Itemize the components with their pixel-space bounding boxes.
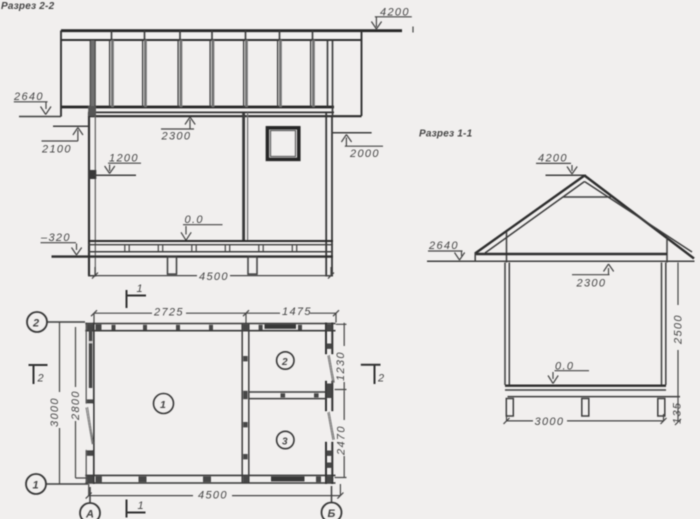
svg-text:4500: 4500 [199,271,229,283]
svg-text:135: 135 [672,402,684,424]
svg-text:3000: 3000 [49,397,61,427]
svg-text:2000: 2000 [349,148,380,160]
svg-text:2300: 2300 [161,131,192,143]
svg-text:2800: 2800 [70,390,82,421]
svg-text:4200: 4200 [538,153,568,165]
svg-text:2500: 2500 [673,314,685,345]
svg-text:3000: 3000 [535,416,565,428]
svg-text:1: 1 [33,480,39,492]
svg-text:2100: 2100 [41,144,72,156]
svg-text:1: 1 [137,283,144,295]
svg-text:1230: 1230 [335,351,347,381]
svg-text:1475: 1475 [282,306,312,318]
svg-text:2: 2 [32,318,39,330]
svg-text:4500: 4500 [198,490,228,502]
svg-text:1: 1 [138,500,145,512]
svg-text:Б: Б [328,508,336,519]
svg-text:2640: 2640 [428,240,459,252]
svg-text:1: 1 [160,399,166,411]
svg-text:Разрез 1-1: Разрез 1-1 [419,129,473,140]
svg-text:Разрез 2-2: Разрез 2-2 [1,1,55,12]
svg-text:2300: 2300 [576,278,607,290]
svg-text:2: 2 [281,357,288,368]
svg-text:2640: 2640 [13,91,44,103]
svg-text:А: А [85,509,94,519]
svg-text:3: 3 [282,437,288,448]
svg-text:2: 2 [377,373,385,385]
svg-text:2: 2 [37,373,45,385]
svg-text:2725: 2725 [153,307,184,319]
svg-text:2470: 2470 [336,425,348,456]
